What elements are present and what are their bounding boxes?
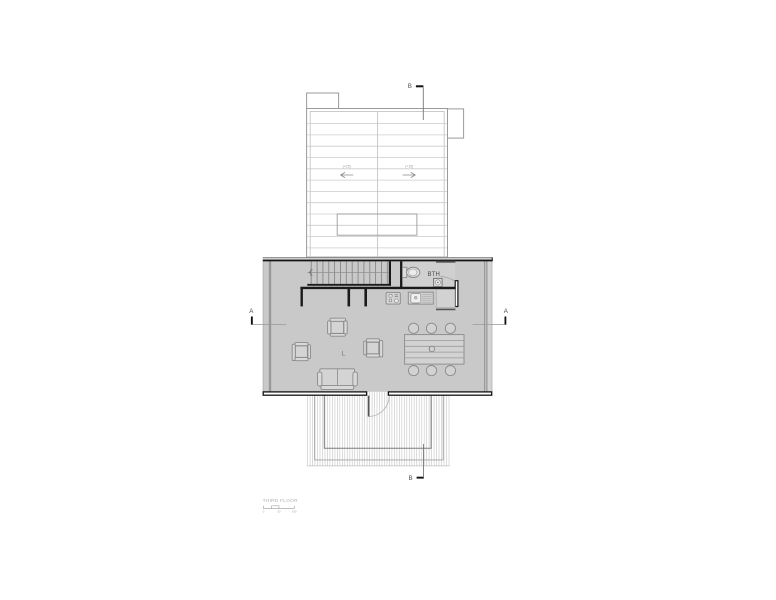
svg-text:L: L [342,351,346,358]
svg-text:B: B [408,83,412,90]
svg-text:100: 100 [292,509,297,513]
svg-text:A: A [504,308,509,315]
svg-text:A: A [249,308,254,315]
svg-text:(+15): (+15) [343,165,351,169]
svg-text:0: 0 [263,509,265,513]
svg-text:B: B [409,475,413,482]
svg-text:(+15): (+15) [405,165,413,169]
svg-text:THIRD FLOOR: THIRD FLOOR [263,498,298,504]
svg-text:50: 50 [277,509,281,513]
svg-text:BTH: BTH [427,272,440,278]
